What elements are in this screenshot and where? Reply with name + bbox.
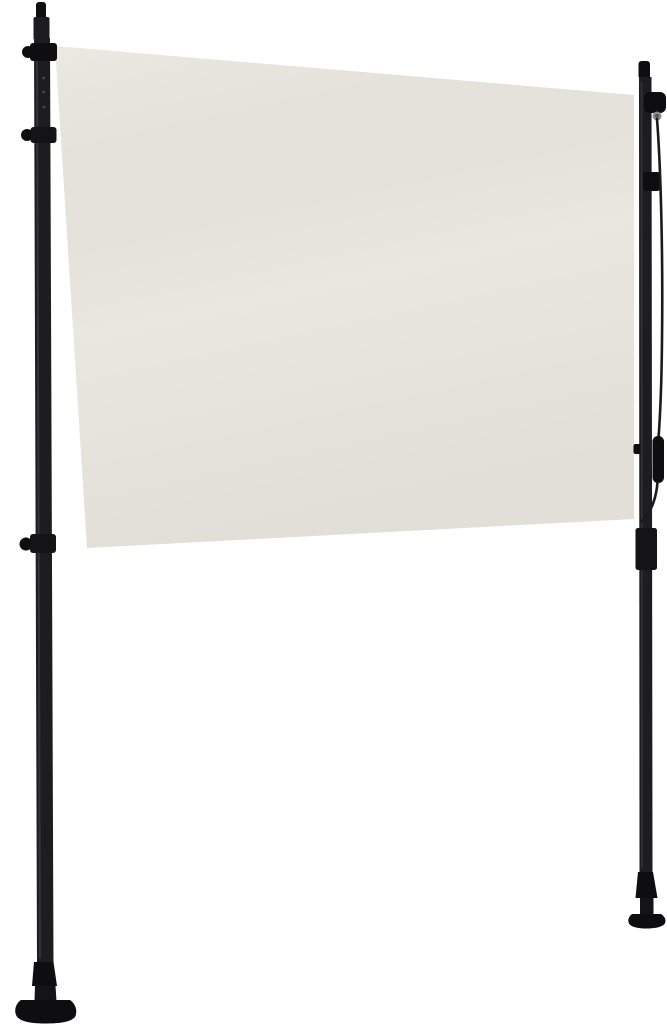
left-pole-upper-clamp	[30, 43, 57, 61]
adjuster-hole	[42, 91, 45, 94]
cord-handle	[653, 436, 665, 483]
cord-guide	[643, 172, 660, 191]
roller-mechanism-bracket	[644, 92, 666, 113]
right-pole-highlight	[642, 82, 643, 868]
left-pole-top-cap	[34, 17, 50, 40]
left-pole-lower-clamp	[30, 534, 56, 553]
adjuster-hole	[43, 106, 46, 109]
fabric-shading-overlay	[55, 46, 634, 548]
adjuster-hole	[42, 77, 45, 80]
cord-cleat-bump	[634, 444, 641, 454]
right-pole-foot-base	[628, 914, 665, 929]
left-pole-foot-base	[15, 1000, 76, 1024]
right-pole-cap	[639, 61, 651, 79]
roller-mechanism-pin-core	[655, 114, 659, 118]
blind-fabric-panel	[55, 46, 634, 548]
left-pole-foot-collar	[32, 962, 57, 986]
product-image-outdoor-roller-blind	[0, 0, 667, 1024]
roller-blind-illustration	[0, 0, 667, 1024]
left-pole-joint-collar	[31, 127, 57, 143]
left-pole-foot-neck	[35, 986, 57, 1001]
right-pole-sleeve	[636, 528, 658, 570]
right-pole-foot-neck	[640, 898, 654, 915]
